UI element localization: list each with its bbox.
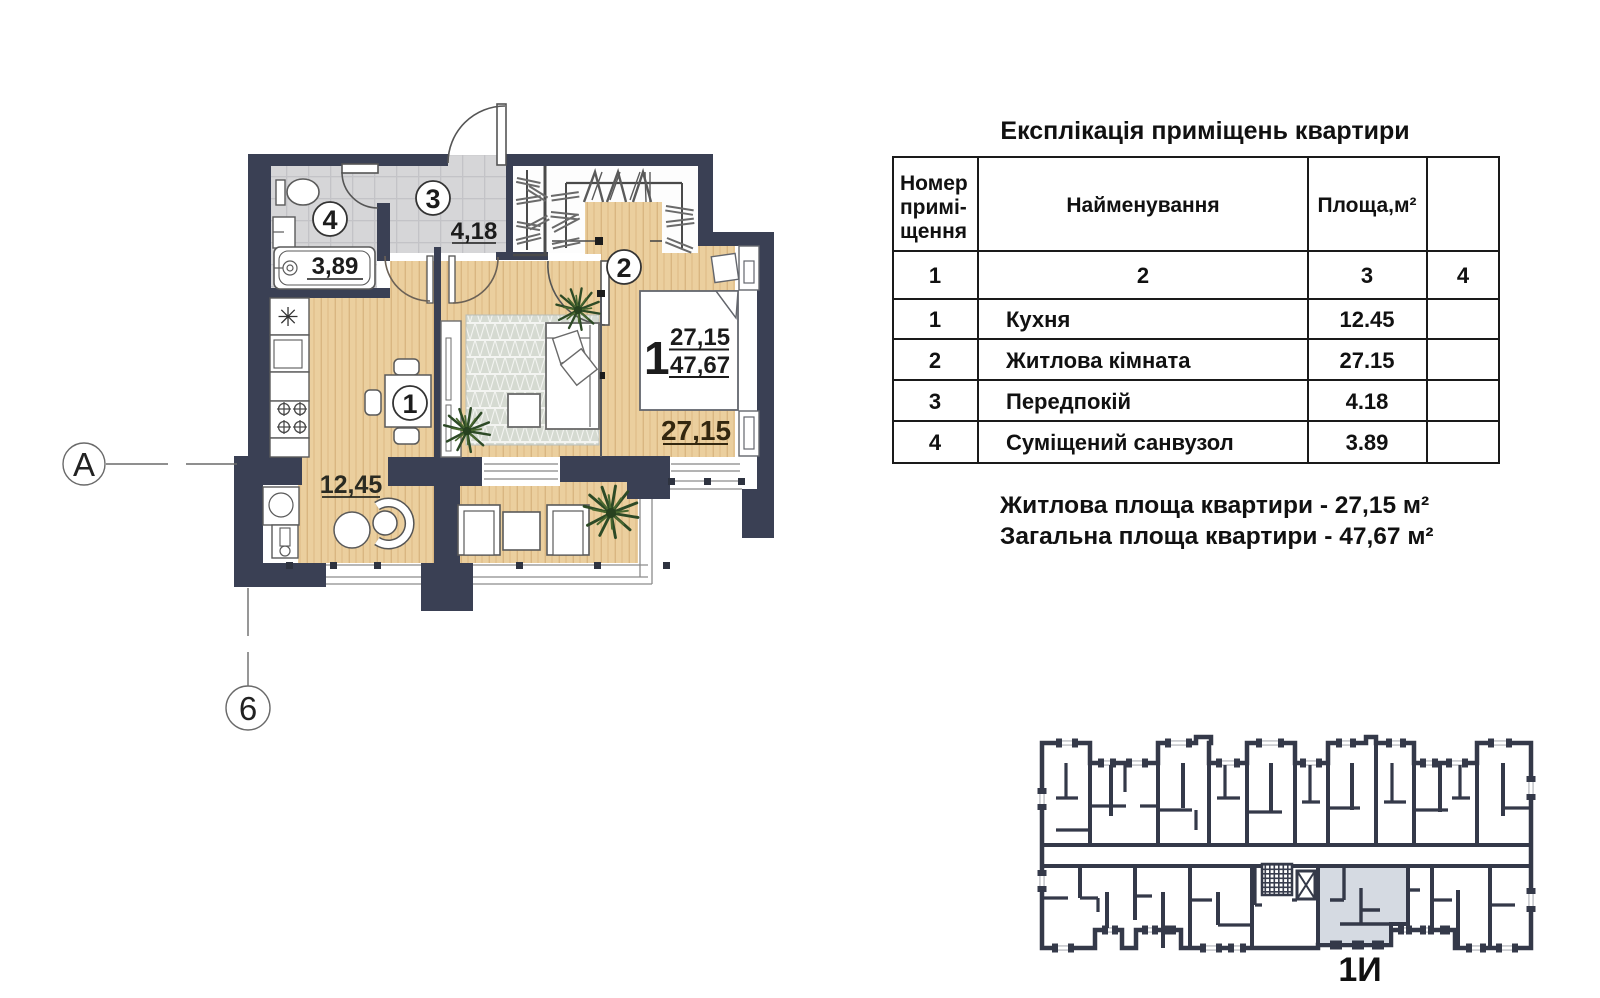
svg-text:2: 2 <box>1137 263 1149 288</box>
svg-text:12.45: 12.45 <box>1339 307 1394 332</box>
svg-text:4: 4 <box>929 430 942 455</box>
svg-text:✳: ✳ <box>277 302 299 332</box>
svg-text:4: 4 <box>322 205 337 235</box>
svg-text:Кухня: Кухня <box>1006 307 1070 332</box>
svg-text:Суміщений санвузол: Суміщений санвузол <box>1006 430 1234 455</box>
svg-text:3: 3 <box>929 389 941 414</box>
svg-text:3: 3 <box>425 184 440 214</box>
svg-text:примі-: примі- <box>900 196 967 219</box>
svg-text:4.18: 4.18 <box>1346 389 1389 414</box>
svg-text:Житлова кімната: Житлова кімната <box>1005 348 1191 373</box>
svg-text:Експлікація приміщень квартири: Експлікація приміщень квартири <box>1000 117 1409 145</box>
svg-text:щення: щення <box>900 220 967 243</box>
svg-text:4: 4 <box>1457 263 1470 288</box>
svg-text:3.89: 3.89 <box>1346 430 1389 455</box>
svg-text:Найменування: Найменування <box>1066 194 1219 217</box>
svg-text:27,15: 27,15 <box>661 415 731 446</box>
svg-text:27.15: 27.15 <box>1339 348 1394 373</box>
svg-text:1: 1 <box>402 389 417 419</box>
svg-text:Житлова площа квартири - 27,15: Житлова площа квартири - 27,15 м² <box>999 492 1429 519</box>
svg-text:Номер: Номер <box>900 172 968 195</box>
svg-text:Загальна площа квартири - 47,6: Загальна площа квартири - 47,67 м² <box>1000 523 1434 550</box>
svg-text:1: 1 <box>929 307 941 332</box>
svg-text:Площа,м²: Площа,м² <box>1317 194 1416 217</box>
svg-text:3,89: 3,89 <box>312 253 359 280</box>
svg-text:2: 2 <box>929 348 941 373</box>
svg-text:12,45: 12,45 <box>320 471 383 499</box>
svg-text:2: 2 <box>616 253 631 283</box>
svg-text:47,67: 47,67 <box>670 352 730 379</box>
svg-text:1: 1 <box>644 332 670 384</box>
svg-text:Передпокій: Передпокій <box>1006 389 1131 414</box>
svg-text:1И: 1И <box>1338 951 1381 989</box>
svg-text:3: 3 <box>1361 263 1373 288</box>
svg-text:1: 1 <box>929 263 941 288</box>
svg-text:4,18: 4,18 <box>451 218 498 245</box>
svg-text:А: А <box>73 446 95 483</box>
svg-text:6: 6 <box>239 690 257 727</box>
svg-text:27,15: 27,15 <box>670 324 730 351</box>
